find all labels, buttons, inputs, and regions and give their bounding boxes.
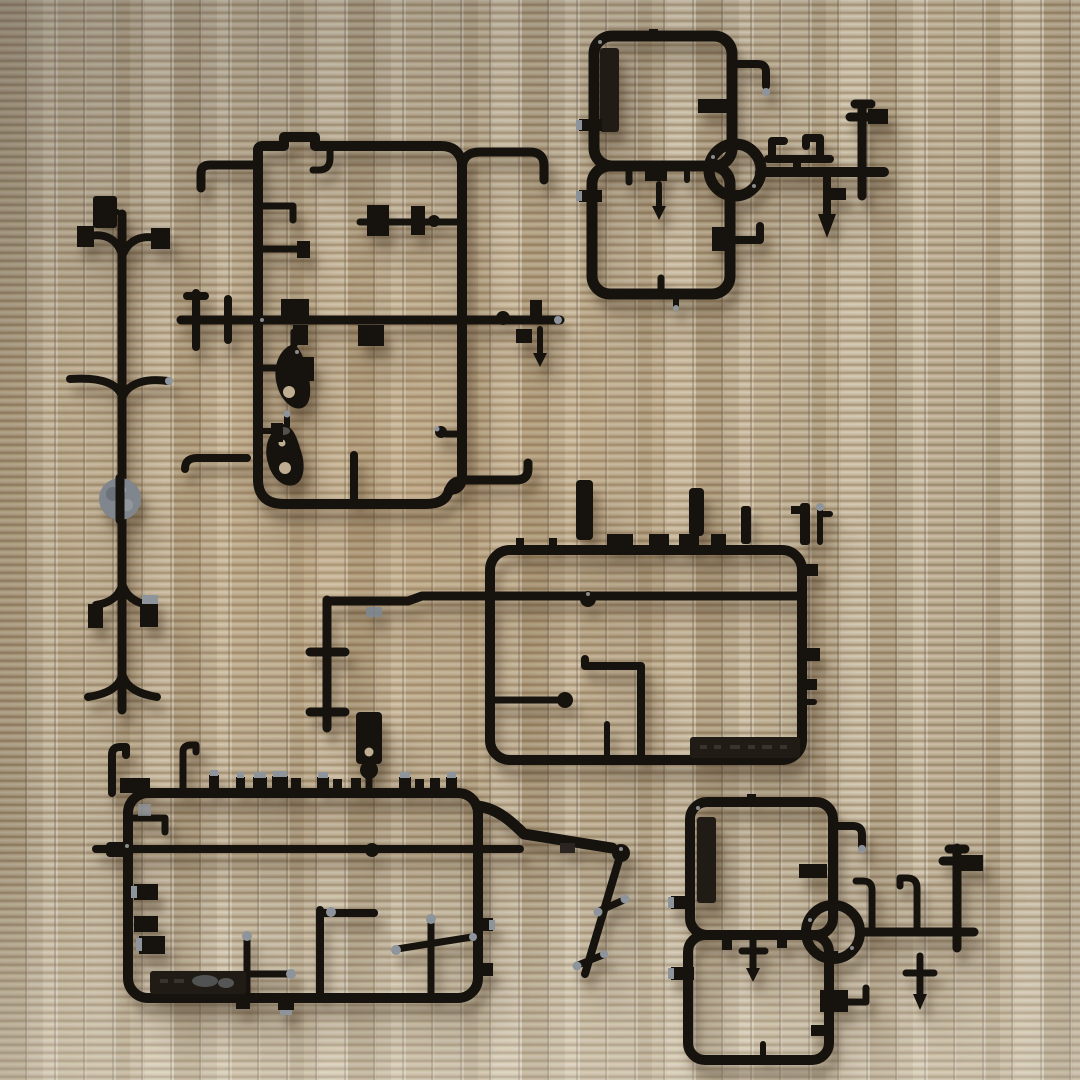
flat-panel-part bbox=[600, 48, 619, 132]
sprue-top-middle bbox=[181, 137, 562, 504]
sprue-bottom-right bbox=[668, 794, 983, 1060]
hook-part bbox=[201, 165, 258, 188]
flat-panel-part bbox=[697, 817, 716, 903]
gate-tab bbox=[366, 607, 382, 617]
sprues-layer bbox=[0, 0, 1080, 1080]
sprue-left bbox=[70, 196, 173, 710]
cylinder-part bbox=[576, 480, 593, 540]
sprue-middle-right bbox=[310, 480, 830, 760]
swing-arm bbox=[477, 806, 612, 848]
cylinder-part bbox=[689, 488, 704, 536]
photo bbox=[0, 0, 1080, 1080]
long-bar bbox=[327, 596, 800, 601]
sprue-top-right bbox=[576, 29, 888, 311]
